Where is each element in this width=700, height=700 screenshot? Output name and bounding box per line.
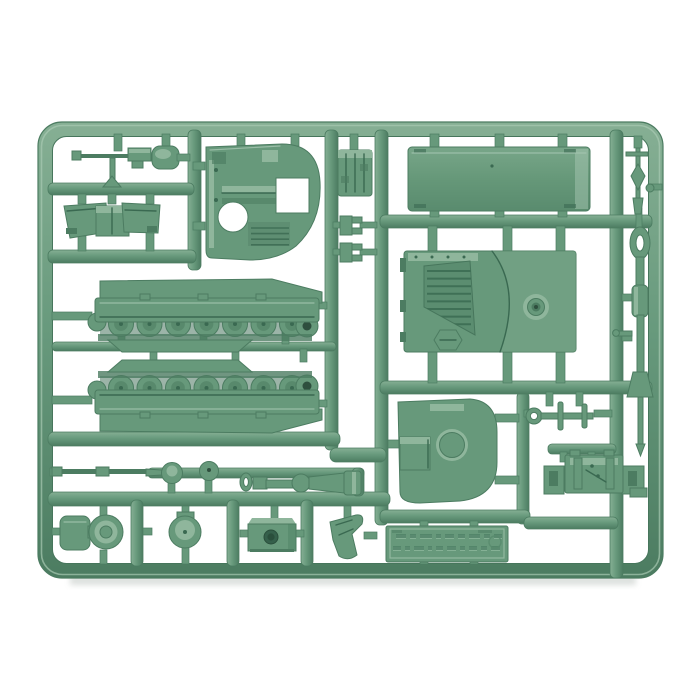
rail-h6: [380, 510, 530, 523]
part-hatch-disc-2: [200, 462, 219, 481]
rail-h4: [380, 381, 652, 394]
sprue-illustration: [0, 0, 700, 700]
rail-v4: [610, 130, 623, 578]
sprocket-hole: [303, 382, 312, 391]
part-engine-access-box: [338, 150, 372, 196]
sprue-photo: [0, 0, 700, 700]
part-hatch-disc-1: [162, 463, 183, 484]
turret-side-opening: [276, 178, 309, 213]
rail-h3: [48, 432, 340, 446]
rail-h7: [48, 492, 390, 506]
rail-h3b: [330, 448, 386, 462]
turret-hatch-hole: [218, 202, 248, 232]
rail-d1: [131, 500, 143, 566]
rail-h2: [380, 215, 652, 228]
part-hull-floor-plate: [408, 147, 590, 211]
embossed-text-line-1: [396, 534, 502, 539]
part-maker-plate: [386, 526, 508, 562]
sprocket-hole: [303, 322, 312, 331]
part-mantlet-block: [248, 518, 296, 552]
part-fender-pair: [64, 203, 160, 238]
rail-d2: [227, 500, 239, 566]
rail-h1b: [48, 250, 196, 263]
rail-h6b: [524, 517, 618, 529]
rail-v1: [188, 130, 201, 270]
part-engine-deck: [400, 251, 576, 352]
rail-h1a: [48, 183, 194, 195]
rail-v3: [375, 130, 388, 525]
part-turret-base: [398, 399, 497, 503]
turret-ring-hole: [534, 305, 538, 309]
